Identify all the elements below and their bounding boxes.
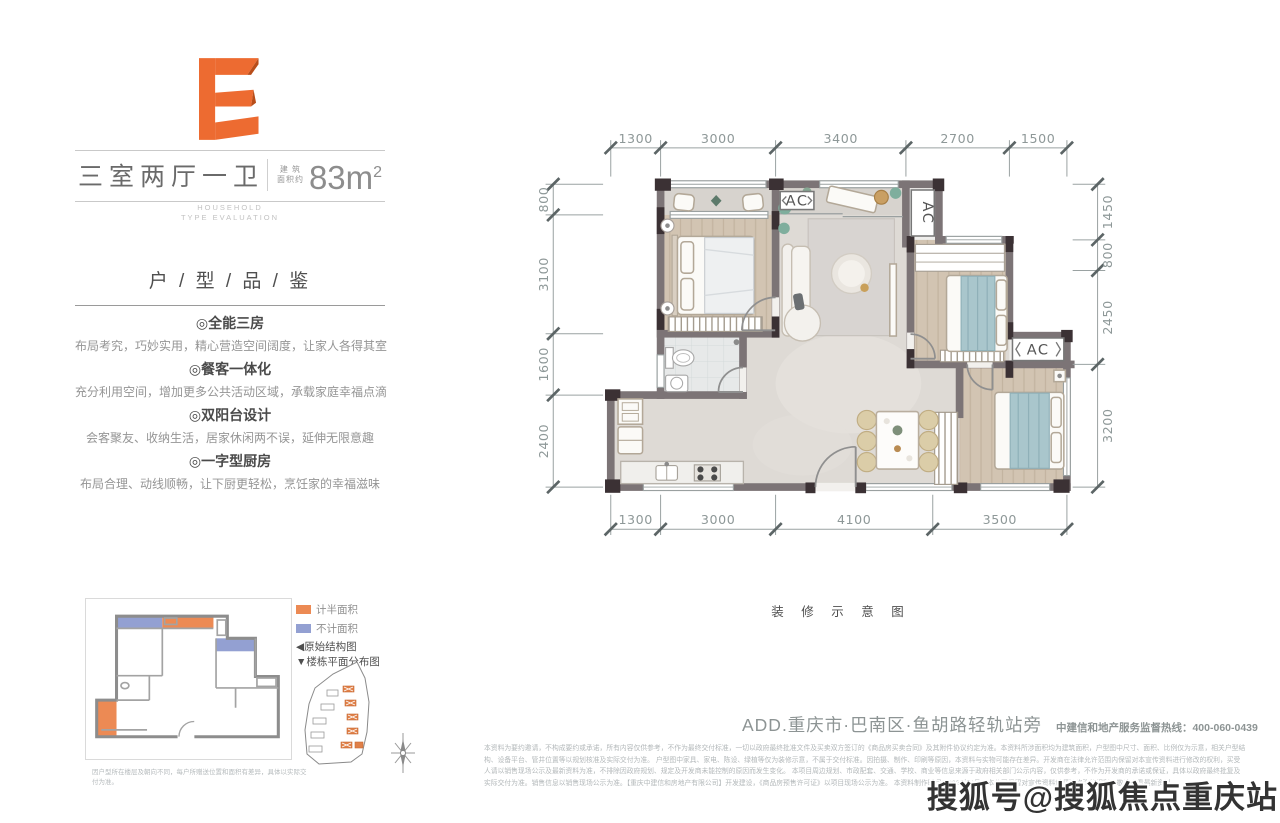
watermark: 搜狐号@搜狐焦点重庆站 bbox=[927, 772, 1278, 817]
unit-type-logo bbox=[75, 58, 385, 145]
svg-text:800: 800 bbox=[1100, 242, 1115, 268]
svg-text:1600: 1600 bbox=[536, 347, 551, 381]
area-prefix: 建 筑 面积约 bbox=[277, 165, 304, 185]
unit-title-block: 三室两厅一卫 建 筑 面积约 83m2 bbox=[75, 150, 385, 202]
letter-e-logo-icon bbox=[199, 58, 261, 140]
excluded-area-swatch-icon bbox=[296, 624, 311, 633]
mini-plan-note: 因户型所在楼层及朝向不同，每户所赠送位置和面积有差异，具体以实际交付为准。 bbox=[92, 766, 312, 786]
svg-text:1300: 1300 bbox=[618, 131, 652, 146]
svg-text:1500: 1500 bbox=[1021, 131, 1055, 146]
legend-item: 计半面积 bbox=[296, 602, 406, 617]
plan-caption: 装 修 示 意 图 bbox=[726, 601, 956, 620]
unit-title: 三室两厅一卫 bbox=[78, 157, 264, 193]
svg-text:3400: 3400 bbox=[824, 131, 858, 146]
svg-text:3000: 3000 bbox=[701, 131, 735, 146]
legend-item: 不计面积 bbox=[296, 621, 406, 636]
ac-label: AC bbox=[786, 193, 809, 210]
site-plan-svg bbox=[299, 658, 377, 770]
floor-plan: AC AC AC 1300300034002700150013003000410… bbox=[536, 121, 1134, 553]
svg-text:2400: 2400 bbox=[536, 424, 551, 458]
feature-item: ◎餐客一体化 充分利用空间，增加更多公共活动区域，承载家庭幸福点滴 bbox=[75, 358, 385, 403]
project-address: ADD.重庆市·巴南区·鱼胡路轻轨站旁 bbox=[742, 712, 1042, 737]
svg-text:800: 800 bbox=[536, 187, 551, 213]
feature-list: ◎全能三房 布局考究，巧妙实用，精心营造空间阔度，让家人各得其室 ◎餐客一体化 … bbox=[75, 312, 385, 496]
ac-label: AC bbox=[1027, 341, 1050, 358]
svg-text:2450: 2450 bbox=[1100, 300, 1115, 334]
feature-item: ◎一字型厨房 布局合理、动线顺畅，让下厨更轻松，烹饪家的幸福滋味 bbox=[75, 450, 385, 495]
service-hotline: 中建信和地产服务监督热线：400-060-0439 bbox=[1056, 720, 1258, 737]
svg-text:1300: 1300 bbox=[618, 512, 652, 527]
svg-text:3200: 3200 bbox=[1100, 409, 1115, 443]
section-title: 户 / 型 / 品 / 鉴 bbox=[75, 266, 385, 306]
svg-text:1450: 1450 bbox=[1100, 195, 1115, 229]
svg-text:2700: 2700 bbox=[940, 131, 974, 146]
mini-floor-plan bbox=[85, 598, 292, 760]
svg-text:3000: 3000 bbox=[701, 512, 735, 527]
area-value: 83m2 bbox=[309, 156, 382, 194]
bedroom2-furniture bbox=[947, 275, 1008, 351]
feature-item: ◎全能三房 布局考究，巧妙实用，精心营造空间阔度，让家人各得其室 bbox=[75, 312, 385, 357]
svg-text:3500: 3500 bbox=[983, 512, 1017, 527]
original-structure-link: ◀原始结构图 bbox=[296, 640, 406, 655]
mini-floor-plan-svg bbox=[86, 599, 289, 757]
address-row: ADD.重庆市·巴南区·鱼胡路轻轨站旁 中建信和地产服务监督热线：400-060… bbox=[742, 712, 1258, 737]
feature-item: ◎双阳台设计 会客聚友、收纳生活，居家休闲两不误，延伸无限意趣 bbox=[75, 404, 385, 449]
title-divider bbox=[267, 159, 268, 191]
subtitle-en: HOUSEHOLD TYPE EVALUATION bbox=[75, 203, 385, 223]
floorplan-poster: 三室两厅一卫 建 筑 面积约 83m2 HOUSEHOLD TYPE EVALU… bbox=[0, 0, 1280, 823]
site-plan bbox=[299, 658, 377, 770]
compass-icon bbox=[389, 729, 417, 777]
dining-furniture bbox=[857, 410, 938, 471]
half-area-swatch-icon bbox=[296, 605, 311, 614]
svg-text:3100: 3100 bbox=[536, 257, 551, 291]
ac-label: AC bbox=[919, 202, 936, 225]
svg-text:4100: 4100 bbox=[837, 512, 871, 527]
floor-plan-svg: AC AC AC 1300300034002700150013003000410… bbox=[536, 121, 1134, 553]
